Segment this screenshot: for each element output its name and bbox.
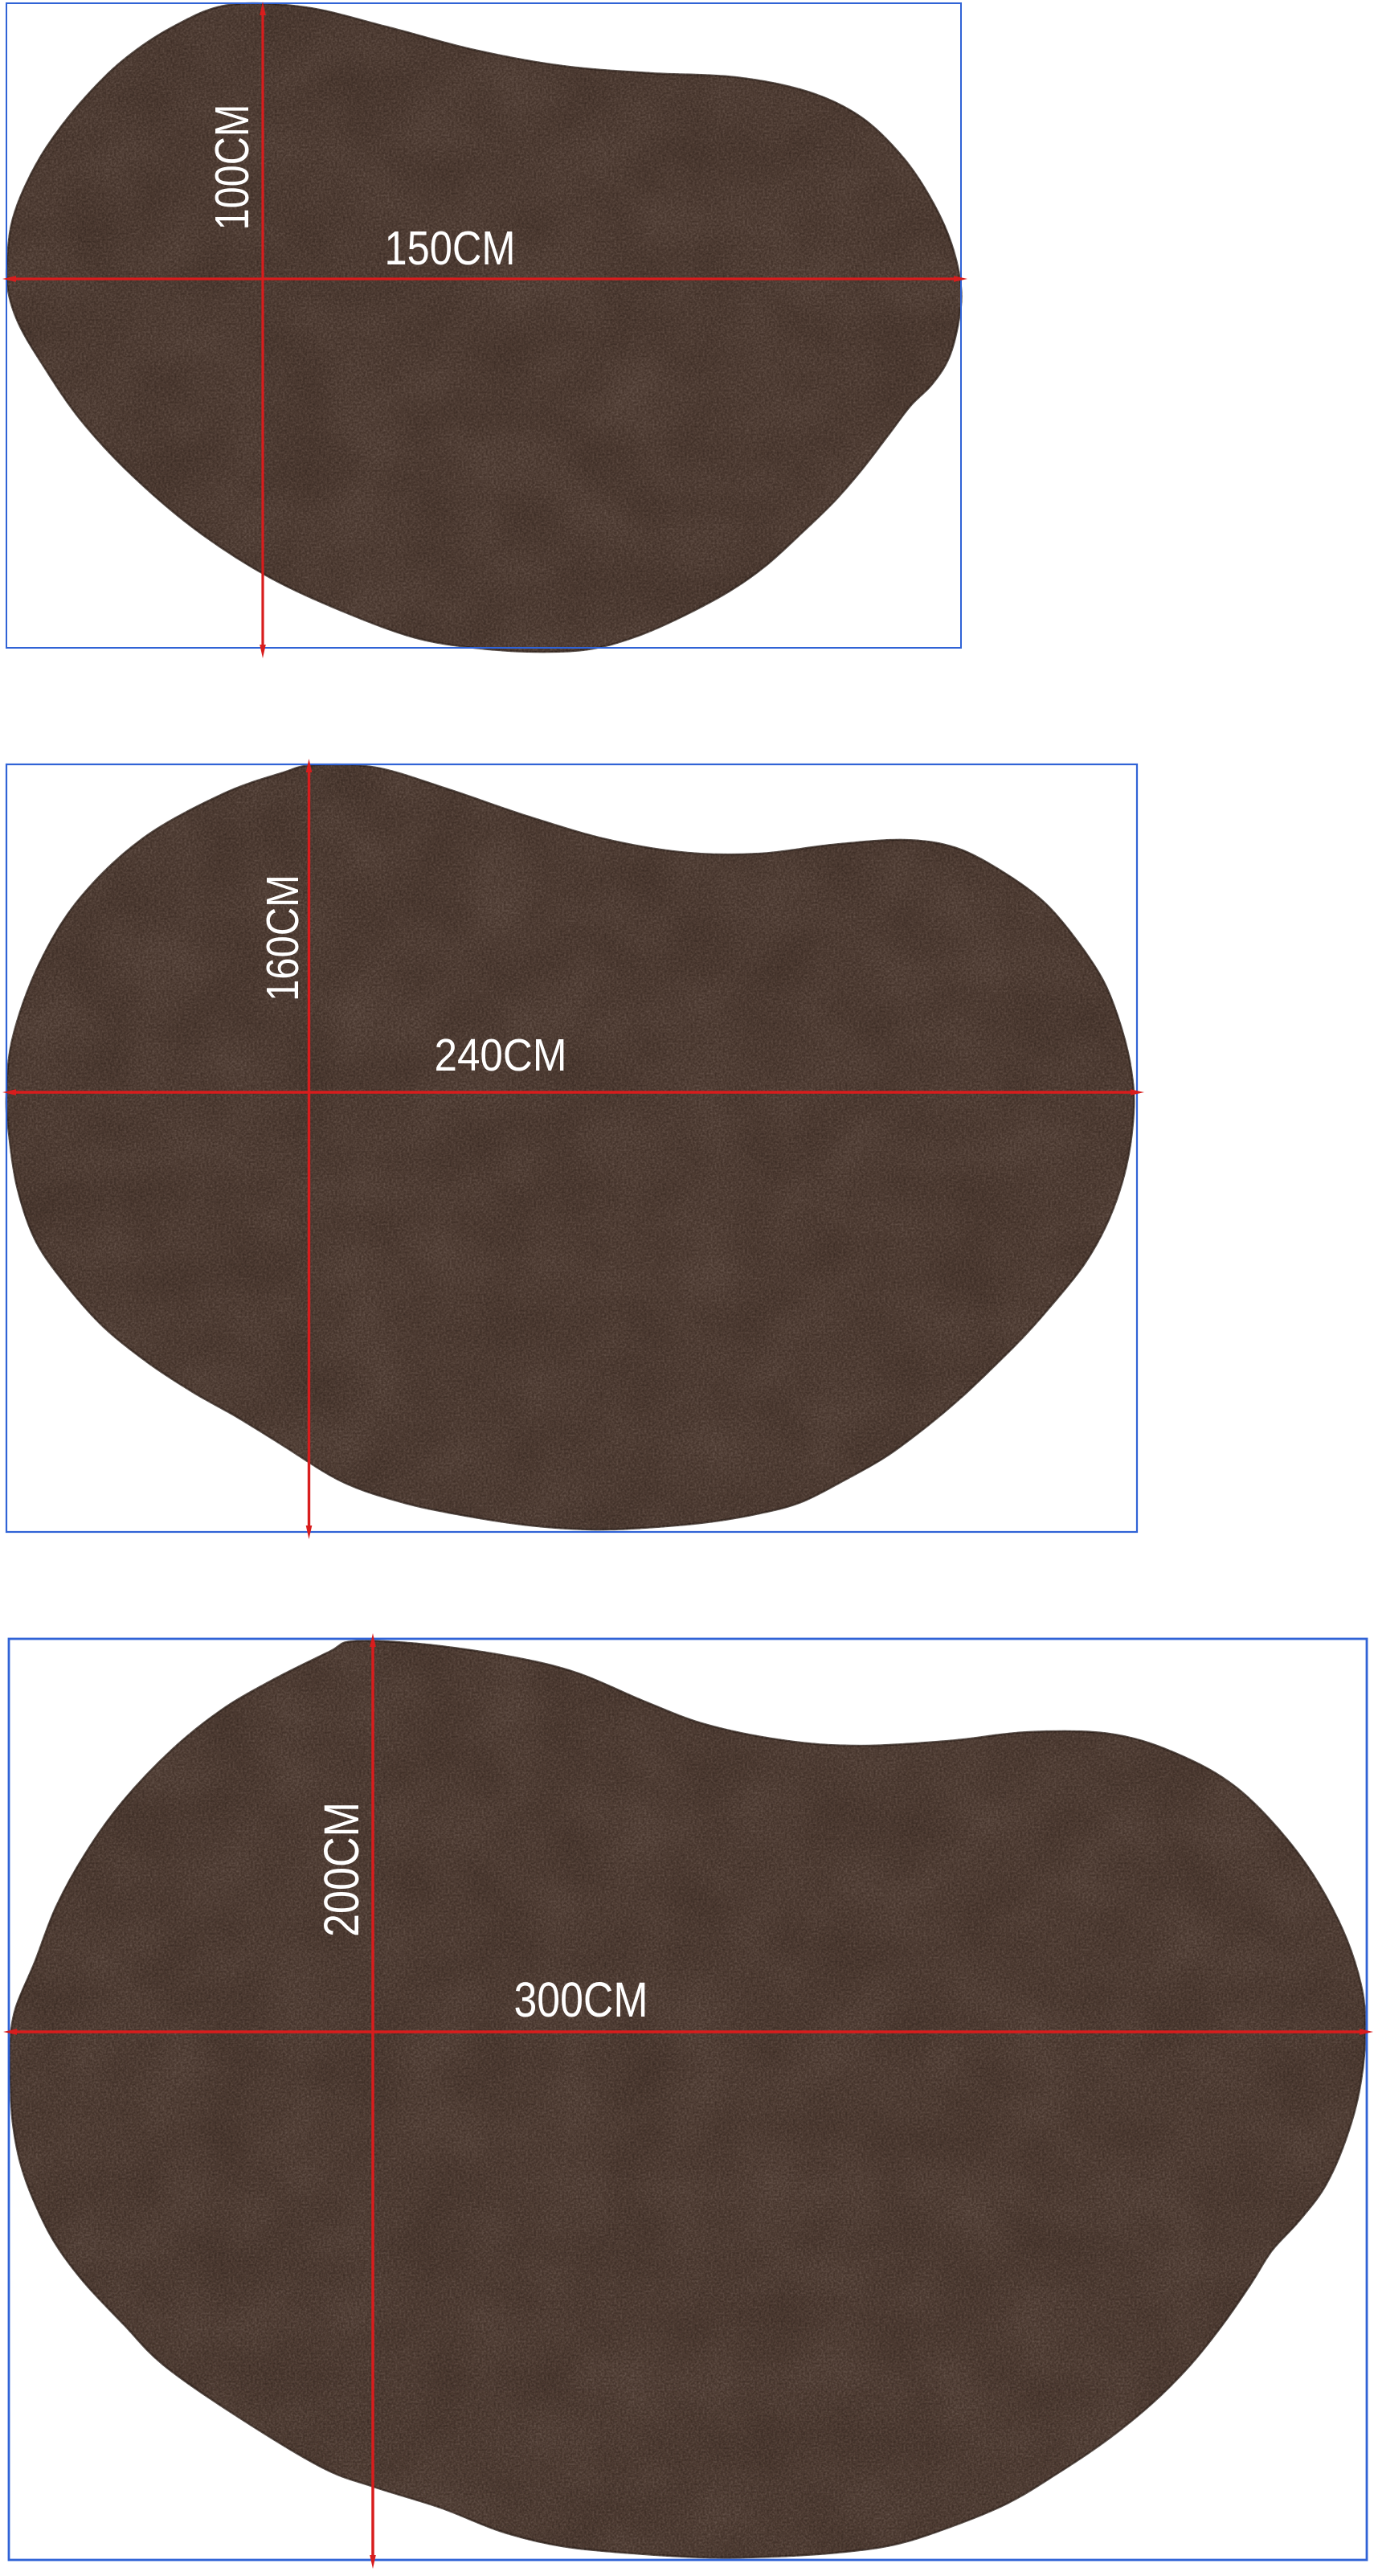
- svg-text:240CM: 240CM: [435, 1030, 567, 1081]
- svg-text:200CM: 200CM: [314, 1802, 369, 1937]
- svg-text:160CM: 160CM: [257, 874, 309, 1001]
- svg-text:150CM: 150CM: [385, 222, 516, 275]
- svg-text:100CM: 100CM: [206, 104, 259, 231]
- svg-text:300CM: 300CM: [514, 1972, 648, 2027]
